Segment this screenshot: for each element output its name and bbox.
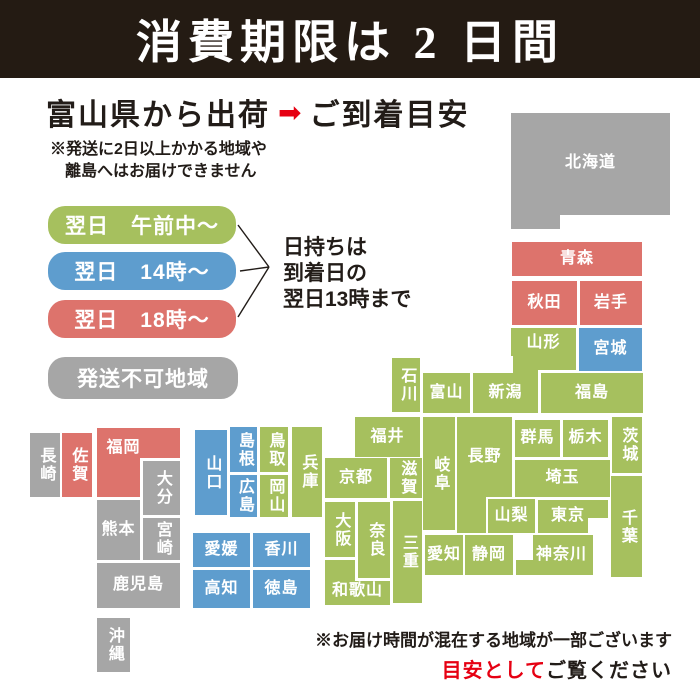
prefecture-tile: 徳島	[253, 570, 310, 608]
prefecture-tile: 千葉	[611, 476, 642, 577]
prefecture-tile: 岩手	[580, 281, 642, 325]
prefecture-tile: 群馬	[515, 420, 560, 457]
prefecture-tile: 北海道	[511, 113, 670, 229]
prefecture-tile: 富山	[423, 373, 470, 413]
shipping-note-line1: ※発送に2日以上かかる地域や	[50, 139, 267, 161]
prefecture-tile: 大阪	[325, 502, 355, 557]
shelf-life-note-line2: 到着日の	[283, 261, 411, 287]
header-banner: 消費期限は 2 日間	[0, 0, 700, 78]
prefecture-tile: 石川	[392, 358, 420, 412]
prefecture-tile: 茨城	[612, 417, 642, 473]
prefecture-tile: 神奈川	[516, 535, 593, 575]
legend-pill-next-day-18: 翌日 18時～	[48, 300, 236, 338]
prefecture-tile: 宮城	[579, 328, 642, 371]
ship-from-label: 富山県から出荷	[46, 90, 270, 134]
legend-pill-next-day-14: 翌日 14時～	[48, 252, 236, 290]
shelf-life-note-line3: 翌日13時まで	[283, 287, 411, 313]
prefecture-tile: 佐賀	[62, 433, 92, 497]
prefecture-tile: 福島	[541, 373, 643, 413]
prefecture-tile: 静岡	[465, 535, 513, 575]
legend-pill-next-day-morning: 翌日 午前中～	[48, 206, 236, 244]
footer-emphasis-red: 目安として	[442, 660, 546, 682]
shipping-note: ※発送に2日以上かかる地域や 離島へはお届けできません	[50, 139, 267, 183]
prefecture-tile: 山梨	[488, 499, 535, 533]
prefecture-tile: 栃木	[563, 420, 608, 457]
prefecture-tile: 奈良	[358, 502, 390, 578]
shipping-note-line2: 離島へはお届けできません	[50, 161, 267, 183]
prefecture-tile: 宮崎	[143, 518, 180, 560]
page-title: 消費期限は 2 日間	[136, 6, 564, 72]
prefecture-tile: 香川	[253, 533, 310, 567]
prefecture-tile: 京都	[325, 458, 387, 498]
prefecture-tile: 愛媛	[193, 533, 250, 567]
prefecture-tile: 山口	[195, 430, 227, 515]
prefecture-tile: 福井	[355, 417, 420, 457]
prefecture-tile: 愛知	[425, 535, 463, 575]
prefecture-tile: 新潟	[473, 356, 538, 413]
footer-note-line2: 目安としてご覧ください	[315, 654, 672, 683]
prefecture-tile: 東京	[538, 500, 608, 533]
prefecture-tile: 青森	[512, 242, 642, 276]
arrival-label: ご到着目安	[309, 90, 469, 134]
legend-pill-no-shipping: 発送不可地域	[48, 357, 238, 399]
prefecture-tile: 三重	[393, 501, 422, 603]
prefecture-tile: 秋田	[512, 281, 577, 325]
prefecture-tile: 兵庫	[292, 427, 322, 517]
shipping-heading: 富山県から出荷 ➡ ご到着目安	[46, 90, 469, 134]
prefecture-tile: 岐阜	[423, 417, 455, 530]
prefecture-tile: 滋賀	[390, 458, 422, 498]
shelf-life-note-line1: 日持ちは	[283, 235, 411, 261]
arrow-right-icon: ➡	[278, 99, 301, 127]
prefecture-tile: 島根	[230, 427, 257, 472]
prefecture-tile: 埼玉	[515, 460, 610, 497]
prefecture-tile: 大分	[143, 461, 180, 515]
footer-note: ※お届け時間が混在する地域が一部ございます 目安としてご覧ください	[315, 626, 672, 683]
prefecture-tile: 鹿児島	[97, 563, 180, 608]
footer-note-line1: ※お届け時間が混在する地域が一部ございます	[315, 626, 672, 651]
prefecture-tile: 熊本	[97, 500, 140, 560]
prefecture-tile: 広島	[230, 475, 257, 517]
prefecture-tile: 鳥取	[260, 427, 288, 472]
delivery-infographic: 消費期限は 2 日間 富山県から出荷 ➡ ご到着目安 ※発送に2日以上かかる地域…	[0, 0, 700, 700]
prefecture-tile: 高知	[193, 570, 250, 608]
prefecture-tile: 長崎	[30, 433, 60, 497]
prefecture-tile: 岡山	[260, 475, 288, 517]
footer-note-line2-black: ご覧ください	[546, 660, 672, 682]
prefecture-tile: 沖縄	[97, 618, 130, 672]
shelf-life-note: 日持ちは 到着日の 翌日13時まで	[283, 235, 411, 313]
